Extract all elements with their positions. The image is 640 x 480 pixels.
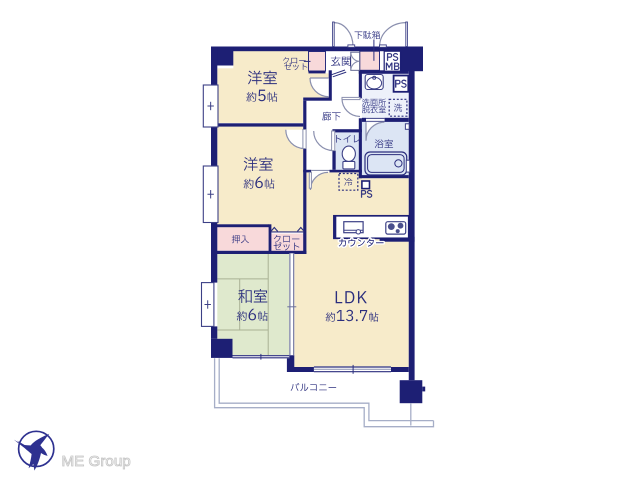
svg-text:ME Group: ME Group xyxy=(62,453,131,470)
